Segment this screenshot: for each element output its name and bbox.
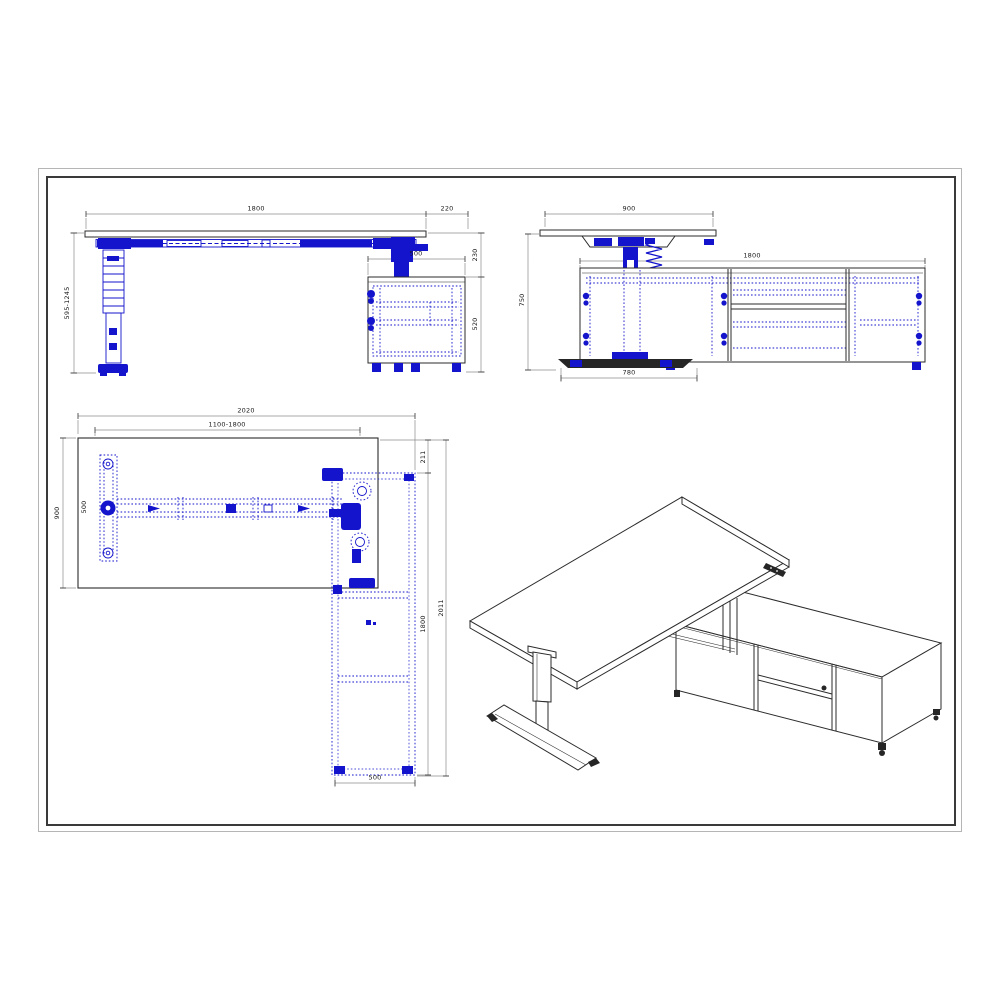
isometric-view	[470, 497, 941, 770]
dim-plan-credenza-length: 1800	[420, 615, 427, 632]
dim-front-top-overhang: 220	[440, 206, 453, 213]
dim-front-clearance: 230	[472, 248, 479, 261]
dim-plan-leg-span: 500	[81, 500, 88, 513]
dim-side-foot-length: 780	[622, 370, 635, 377]
dim-side-desk-height: 750	[519, 293, 526, 306]
dim-plan-overall-width: 2020	[237, 408, 254, 415]
dim-side-credenza-length: 1800	[743, 253, 760, 260]
plan-view	[60, 413, 449, 787]
dim-plan-return-offset: 211	[420, 450, 427, 463]
dim-front-cabinet-height: 520	[472, 317, 479, 330]
dim-plan-desk-depth: 900	[54, 506, 61, 519]
dim-side-desk-depth: 900	[622, 206, 635, 213]
dim-front-cabinet-depth: 500	[409, 251, 422, 258]
dim-plan-overall-depth: 2011	[438, 599, 445, 616]
cad-drawing-canvas	[0, 0, 1000, 1000]
dim-plan-width-range: 1100-1800	[208, 422, 245, 429]
cad-sheet: 1800 220 595-1245 500 230 520 900 1800 7…	[0, 0, 1000, 1000]
side-elevation-view	[525, 211, 925, 382]
dim-plan-credenza-depth: 500	[368, 775, 381, 782]
dim-front-height-range: 595-1245	[64, 287, 71, 320]
dim-front-desk-width: 1800	[247, 206, 264, 213]
front-elevation-view	[70, 211, 485, 376]
